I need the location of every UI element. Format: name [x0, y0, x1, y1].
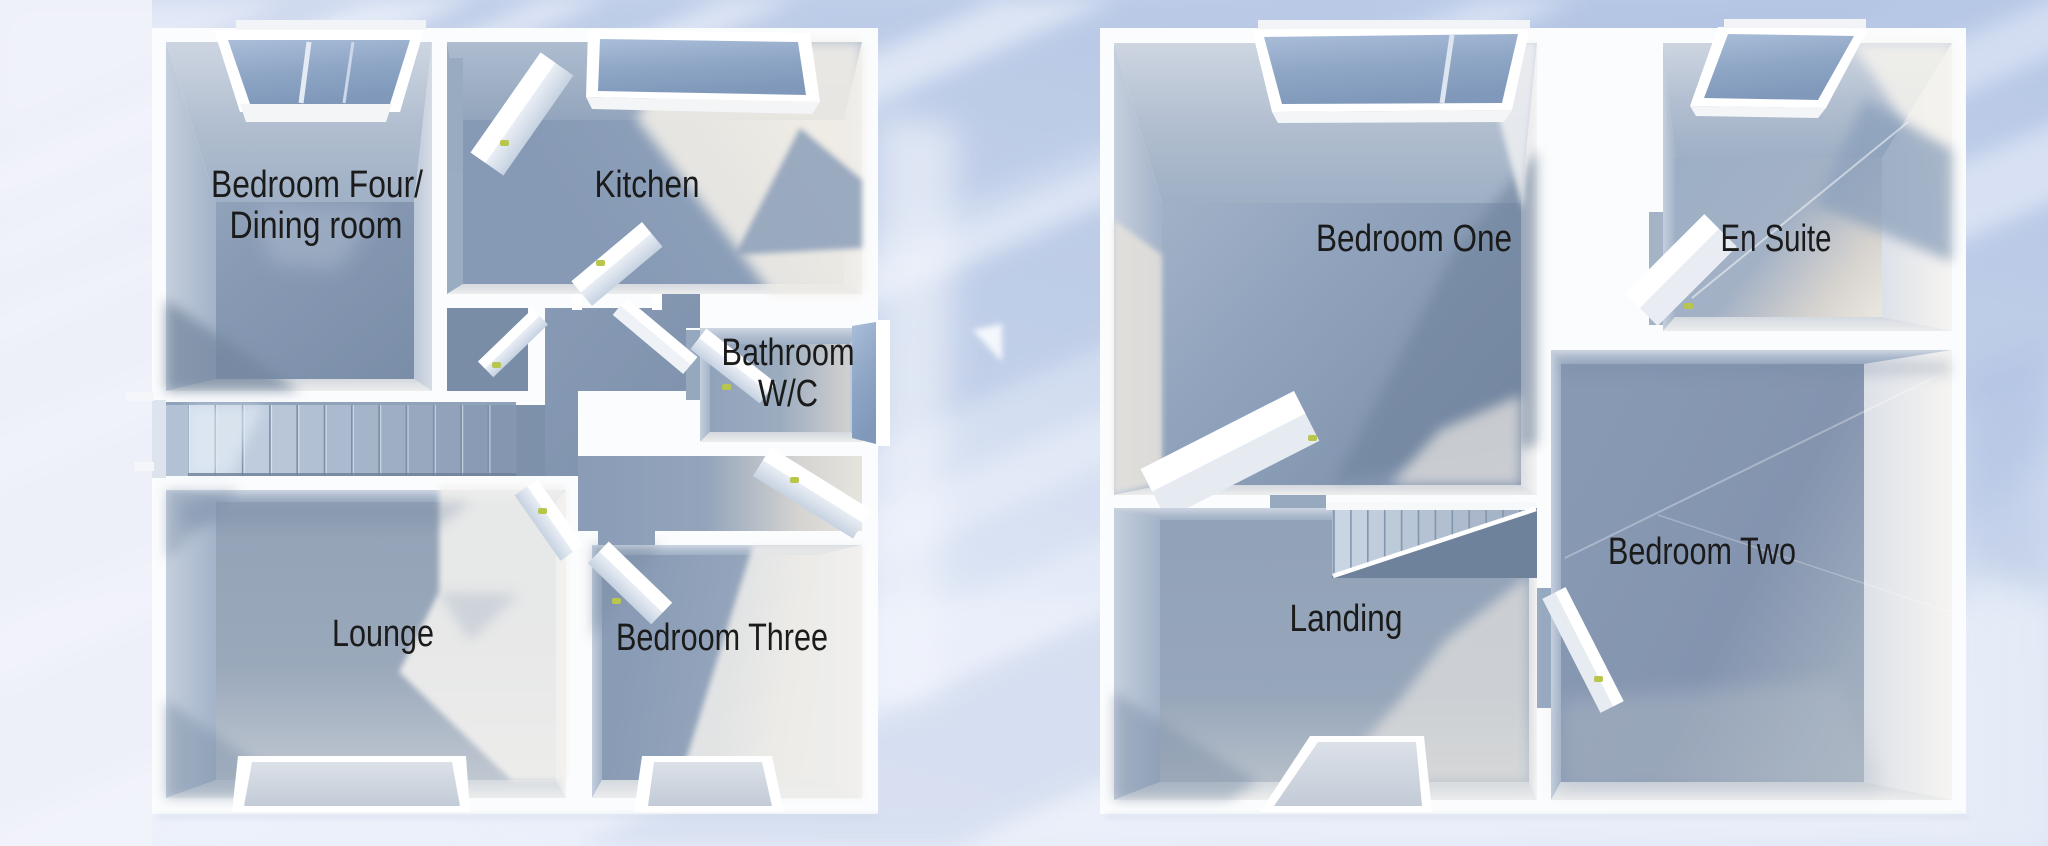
- svg-text:Landing: Landing: [1290, 598, 1403, 640]
- svg-text:Dining room: Dining room: [230, 205, 403, 247]
- svg-text:Bedroom Four/: Bedroom Four/: [211, 164, 423, 206]
- svg-text:W/C: W/C: [758, 373, 818, 415]
- svg-text:Kitchen: Kitchen: [595, 164, 700, 206]
- svg-text:Lounge: Lounge: [332, 613, 434, 655]
- svg-text:Bedroom Three: Bedroom Three: [616, 617, 828, 659]
- svg-text:En Suite: En Suite: [1721, 218, 1832, 260]
- svg-text:Bedroom One: Bedroom One: [1316, 218, 1512, 260]
- svg-text:Bedroom Two: Bedroom Two: [1608, 531, 1796, 573]
- svg-text:Bathroom: Bathroom: [722, 332, 855, 374]
